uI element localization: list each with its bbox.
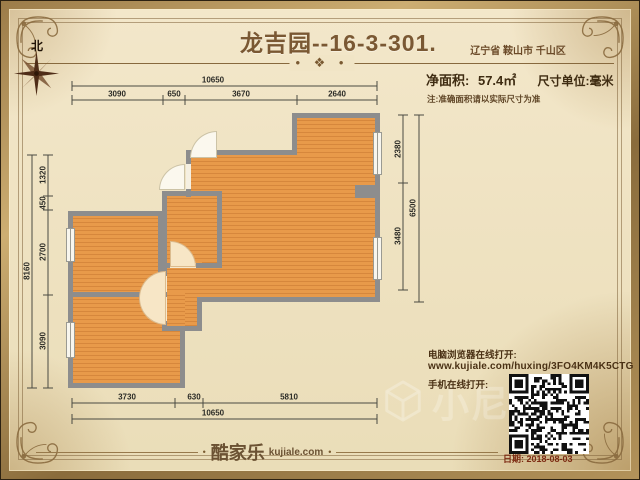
floorplan-page: 龙吉园--16-3-301. • ❖ • 辽宁省 鞍山市 千山区 净面积: 57… xyxy=(0,0,640,480)
dim-left-seg: 3090 xyxy=(39,332,48,350)
brand-logo: 酷家乐 xyxy=(211,439,265,465)
dim-top-seg: 650 xyxy=(167,90,180,99)
brand-domain: kujiale.com xyxy=(269,447,323,458)
dim-left-overall: 8160 xyxy=(23,262,32,280)
dim-top-seg: 3670 xyxy=(232,90,250,99)
dim-top-seg: 3090 xyxy=(108,90,126,99)
brand-divider-right xyxy=(336,452,498,453)
dim-top-seg: 2640 xyxy=(328,90,346,99)
dim-left-seg: 2700 xyxy=(39,243,48,261)
dim-bottom-seg: 3730 xyxy=(118,393,136,402)
mobile-open-label: 手机在线打开: xyxy=(428,377,488,391)
dim-right-overall: 6500 xyxy=(409,199,418,217)
dim-right-seg: 2380 xyxy=(394,140,403,158)
divider-dot: • xyxy=(323,447,336,457)
cube-watermark-icon xyxy=(380,378,426,424)
dim-left-seg: 1320 xyxy=(39,166,48,184)
dim-top-overall: 10650 xyxy=(202,76,224,85)
qr-code xyxy=(509,374,589,454)
divider-dot: • xyxy=(198,447,211,457)
dim-bottom-seg: 5810 xyxy=(280,393,298,402)
pc-open-label: 电脑浏览器在线打开: xyxy=(428,347,517,361)
brand-row: • 酷家乐 kujiale.com • xyxy=(36,443,498,461)
share-url-text: www.kujiale.com/huxing/3FO4KM4K5CTG xyxy=(428,361,634,372)
dim-right-seg: 3480 xyxy=(394,227,403,245)
date-text: 日期: 2018-08-03 xyxy=(503,452,573,465)
dim-bottom-overall: 10650 xyxy=(202,409,224,418)
dim-bottom-seg: 630 xyxy=(187,393,200,402)
dim-left-seg: 450 xyxy=(39,196,48,209)
brand-divider-left xyxy=(36,452,198,453)
